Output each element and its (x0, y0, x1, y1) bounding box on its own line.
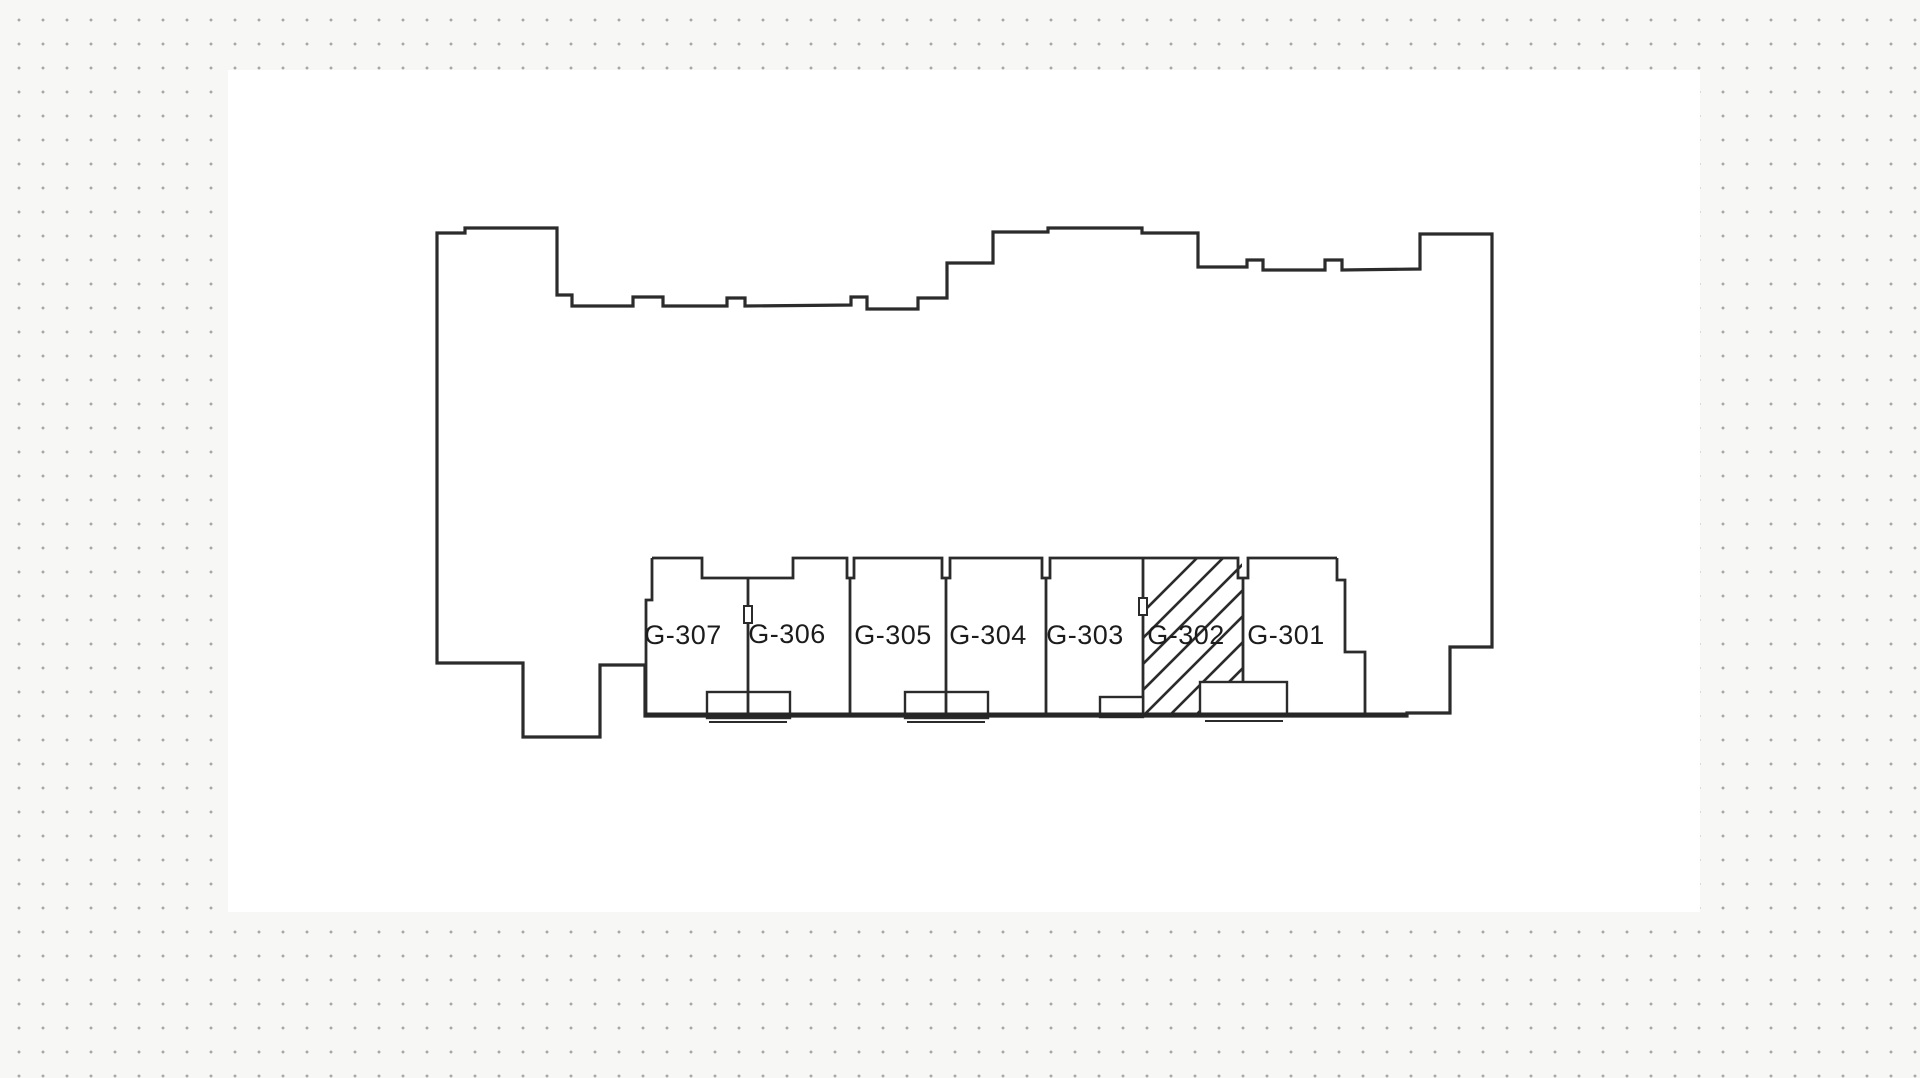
room-label-g302: G-302 (1147, 620, 1225, 650)
room-label-g306: G-306 (748, 619, 826, 649)
entry-step-g302-g301 (1200, 682, 1287, 716)
room-label-g301: G-301 (1247, 620, 1325, 650)
room-label-g307: G-307 (644, 620, 722, 650)
scanned-floorplan-page: G-307 G-306 G-305 G-304 G-303 G-302 G-30… (0, 0, 1920, 1078)
plan-paper-area (228, 70, 1700, 912)
room-label-g303: G-303 (1046, 620, 1124, 650)
floor-plan-canvas: G-307 G-306 G-305 G-304 G-303 G-302 G-30… (0, 0, 1920, 1078)
room-label-g304: G-304 (949, 620, 1027, 650)
room-label-g305: G-305 (854, 620, 932, 650)
door-marker-g302 (1139, 598, 1147, 615)
